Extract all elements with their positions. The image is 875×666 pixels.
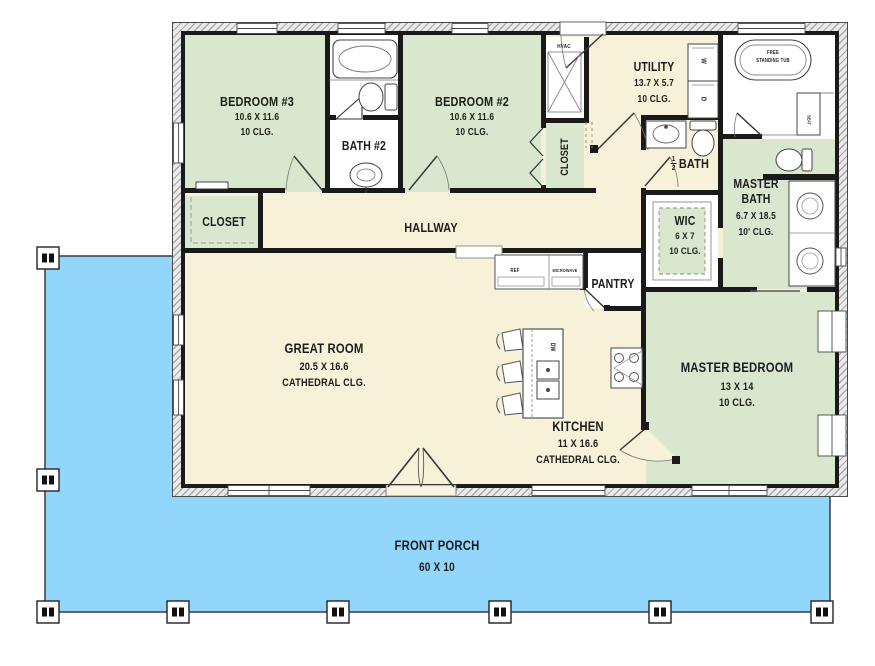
room-dims-wic: 6 X 7 [656, 231, 715, 242]
room-clg-bedroom2: 10 CLG. [417, 127, 526, 139]
wall-segment [181, 188, 285, 193]
wall-segment [723, 134, 762, 139]
room-label-pantry: PANTRY [583, 277, 643, 292]
wall-segment [181, 248, 458, 253]
wall-segment [584, 37, 589, 120]
room-clg-great-room: CATHEDRAL CLG. [265, 377, 383, 390]
wall-segment [329, 115, 336, 120]
wall-segment [718, 35, 723, 228]
wall-segment [641, 115, 646, 150]
room-dims-bedroom2: 10.6 X 11.6 [417, 112, 526, 124]
wall-segment [398, 35, 403, 192]
floor-plan: BEDROOM #3 10.6 X 11.6 10 CLG. BATH #2 B… [0, 0, 875, 666]
room-label-bath2: BATH #2 [325, 139, 402, 154]
room-label-bedroom3: BEDROOM #3 [202, 94, 311, 110]
room-dims-utility: 13.7 X 5.7 [612, 78, 696, 90]
room-dims-front-porch: 60 X 10 [378, 560, 496, 574]
wall-segment [646, 190, 723, 195]
room-dims-kitchen: 11 X 16.6 [528, 438, 629, 451]
wall-segment [322, 188, 405, 193]
wall-segment [541, 35, 546, 128]
room-clg-utility: 10 CLG. [612, 94, 696, 106]
room-label-master-bath: MASTER BATH [730, 177, 782, 207]
porch-left-wing [45, 256, 172, 612]
wall-segment [258, 193, 263, 250]
washer-label: W [700, 58, 707, 64]
seat-label: SEAT [807, 115, 812, 125]
room-label-wic: WIC [656, 214, 715, 229]
wall-segment [363, 115, 400, 120]
wall-segment [500, 248, 646, 253]
room-label-master-bedroom: MASTER BEDROOM [666, 360, 809, 376]
room-bath2 [329, 35, 398, 192]
ref-label: REF [501, 268, 530, 274]
porch-front-strip [172, 497, 830, 612]
room-label-closet-hall: CLOSET [192, 215, 256, 230]
room-label-half-bath: 12 BATH [659, 155, 721, 172]
wall-segment [807, 287, 835, 292]
half-fraction: 12 [671, 155, 676, 172]
room-label-closet-bed2: CLOSET [559, 138, 571, 175]
room-label-bedroom2: BEDROOM #2 [417, 94, 526, 110]
room-label-great-room: GREAT ROOM [265, 341, 383, 357]
wall-segment [641, 115, 723, 120]
room-clg-master-bedroom: 10 CLG. [666, 397, 809, 410]
room-clg-kitchen: CATHEDRAL CLG. [528, 454, 629, 467]
hvac-label: HVAC [547, 44, 581, 51]
room-label-front-porch: FRONT PORCH [378, 538, 496, 554]
room-clg-master-bath: 10' CLG. [724, 227, 788, 239]
wall-segment [541, 118, 589, 123]
room-clg-wic: 10 CLG. [656, 246, 715, 257]
room-label-utility: UTILITY [612, 60, 696, 75]
room-dims-master-bedroom: 13 X 14 [666, 381, 809, 394]
microwave-label: MICROWAVE [547, 268, 584, 273]
free-tub-label: FREE STANDING TUB [755, 50, 790, 65]
room-dims-master-bath: 6.7 X 18.5 [724, 211, 788, 223]
room-label-kitchen: KITCHEN [528, 419, 629, 435]
room-dims-bedroom3: 10.6 X 11.6 [202, 112, 311, 124]
room-dims-great-room: 20.5 X 16.6 [265, 361, 383, 374]
room-clg-bedroom3: 10 CLG. [202, 127, 311, 139]
dryer-label: D [700, 97, 707, 101]
wall-segment [641, 287, 757, 292]
wall-segment [450, 188, 596, 193]
wall-segment [325, 35, 330, 192]
wall-segment [606, 306, 646, 311]
room-label-hallway: HALLWAY [385, 220, 477, 236]
dishwasher-label: DW [549, 343, 555, 351]
